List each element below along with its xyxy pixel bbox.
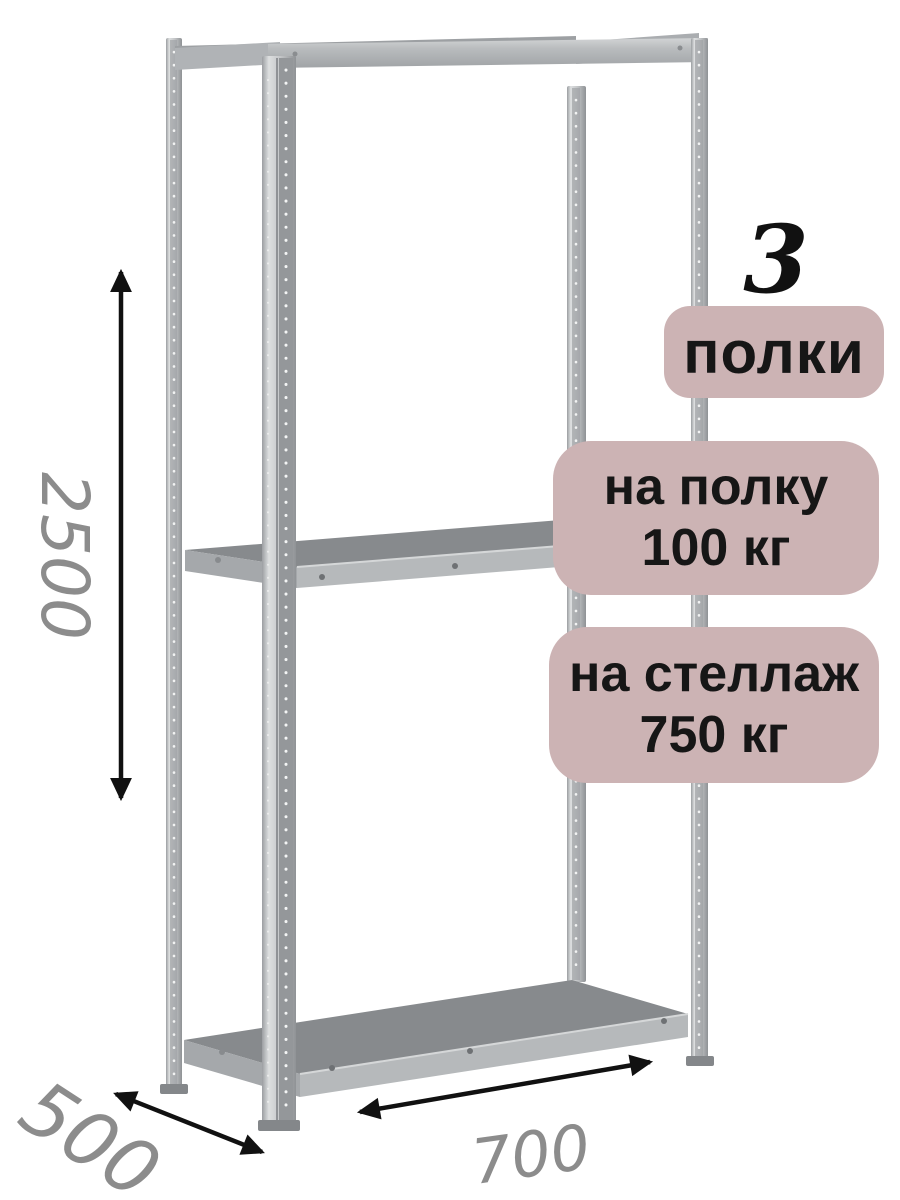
shelf-load-line1: на полку [604,457,829,518]
post-foot [160,1084,188,1094]
rack-shelf-bottom [184,980,688,1097]
shelf-load-line2: 100 кг [642,518,791,579]
rack-post-front-left [258,56,300,1131]
rack-load-line2: 750 кг [640,705,789,766]
rack-post-back-left [160,38,188,1094]
shelf-count-badge: полки [664,306,884,398]
rack-top-frame [175,33,708,70]
post-foot [686,1056,714,1066]
rack-load-badge: на стеллаж 750 кг [549,627,879,783]
shelf-load-badge: на полку 100 кг [553,441,879,595]
shelf-count-label: полки [683,318,864,387]
shelf-count-number: 3 [716,204,836,322]
rack-load-line1: на стеллаж [569,644,859,705]
product-illustration: 3 полки на полку 100 кг на стеллаж 750 к… [0,0,900,1200]
height-dimension-label: 2500 [19,426,109,686]
rack-and-arrows-canvas [0,0,900,1200]
post-foot [258,1120,300,1131]
